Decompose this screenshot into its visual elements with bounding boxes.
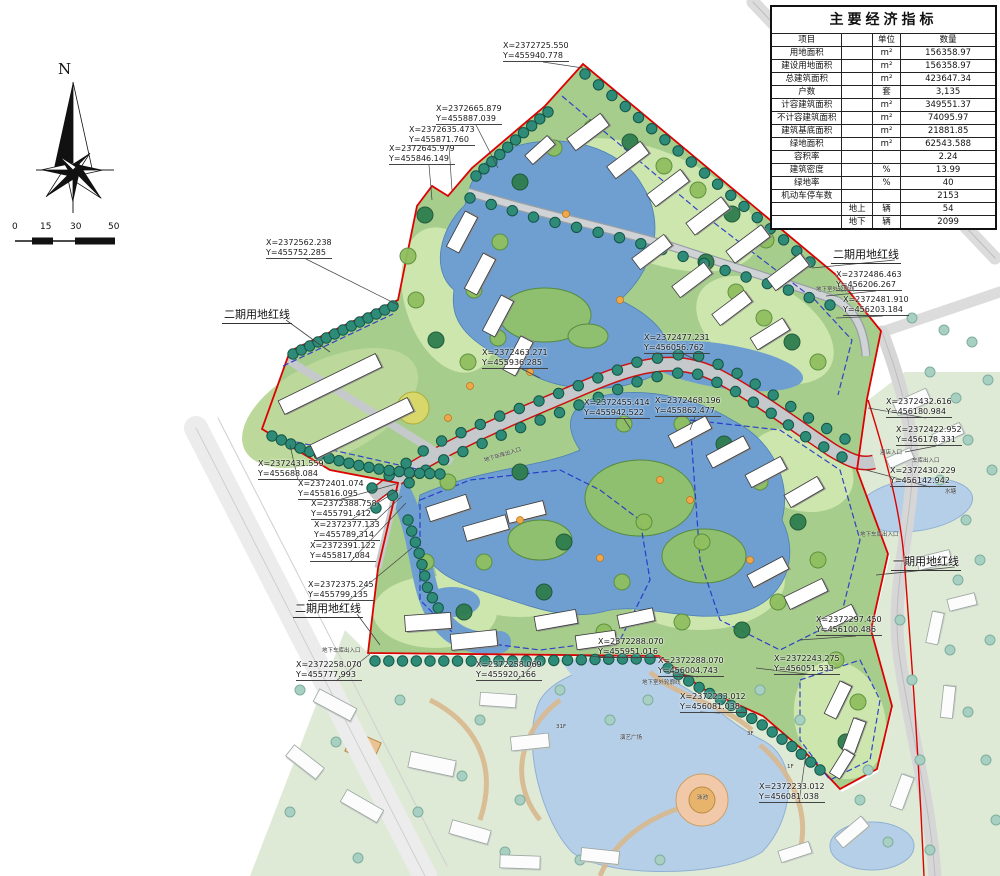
- table-cell-qty: 40: [901, 177, 996, 190]
- table-cell-sub: [842, 151, 872, 164]
- table-row: 建设用地面积m²156358.97: [771, 60, 996, 73]
- table-cell-item: [771, 203, 842, 216]
- table-cell-unit: 辆: [872, 203, 900, 216]
- table-cell-unit: [872, 151, 900, 164]
- table-cell-sub: [842, 86, 872, 99]
- table-cell-qty: 2.24: [901, 151, 996, 164]
- table-row: 建筑密度%13.99: [771, 164, 996, 177]
- table-cell-item: 用地面积: [771, 47, 842, 60]
- table-cell-qty: 423647.34: [901, 73, 996, 86]
- table-cell-unit: m²: [872, 125, 900, 138]
- table-cell-sub: 地上: [842, 203, 872, 216]
- table-cell-sub: [842, 177, 872, 190]
- table-cell-unit: m²: [872, 47, 900, 60]
- table-cell-item: 总建筑面积: [771, 73, 842, 86]
- table-row: 计容建筑面积m²349551.37: [771, 99, 996, 112]
- col-header-qty: 数量: [901, 34, 996, 47]
- table-cell-sub: [842, 190, 872, 203]
- table-row: 地上辆54: [771, 203, 996, 216]
- scale-tick-15: 15: [40, 222, 51, 232]
- table-cell-unit: 辆: [872, 216, 900, 230]
- col-header-item: 项目: [771, 34, 842, 47]
- table-row: 户数套3,135: [771, 86, 996, 99]
- table-cell-unit: %: [872, 164, 900, 177]
- table-cell-item: 计容建筑面积: [771, 99, 842, 112]
- scale-bar: 0 15 30 50: [12, 222, 122, 246]
- table-header-row: 项目 单位 数量: [771, 34, 996, 47]
- table-row: 绿地面积m²62543.588: [771, 138, 996, 151]
- table-cell-item: 机动车停车数: [771, 190, 842, 203]
- north-label: N: [58, 60, 71, 78]
- table-cell-item: 建筑基底面积: [771, 125, 842, 138]
- scale-tick-0: 0: [12, 222, 18, 232]
- table-cell-sub: [842, 125, 872, 138]
- table-cell-unit: m²: [872, 112, 900, 125]
- table-row: 地下辆2099: [771, 216, 996, 230]
- table-cell-sub: [842, 138, 872, 151]
- scale-tick-50: 50: [108, 222, 119, 232]
- table-row: 不计容建筑面积m²74095.97: [771, 112, 996, 125]
- table-cell-unit: %: [872, 177, 900, 190]
- table-cell-unit: m²: [872, 138, 900, 151]
- table-cell-sub: [842, 60, 872, 73]
- table-cell-unit: [872, 190, 900, 203]
- table-row: 用地面积m²156358.97: [771, 47, 996, 60]
- compass-rose: [18, 78, 128, 218]
- table-cell-qty: 156358.97: [901, 60, 996, 73]
- table-row: 绿地率%40: [771, 177, 996, 190]
- table-cell-qty: 156358.97: [901, 47, 996, 60]
- table-cell-unit: 套: [872, 86, 900, 99]
- table-row: 容积率2.24: [771, 151, 996, 164]
- table-row: 总建筑面积m²423647.34: [771, 73, 996, 86]
- table-cell-unit: m²: [872, 99, 900, 112]
- table-cell-qty: 74095.97: [901, 112, 996, 125]
- table-cell-sub: [842, 164, 872, 177]
- table-cell-qty: 2099: [901, 216, 996, 230]
- table-cell-sub: [842, 99, 872, 112]
- economic-indicators-table: 主要经济指标 项目 单位 数量 用地面积m²156358.97建设用地面积m²1…: [770, 5, 997, 230]
- table-cell-qty: 13.99: [901, 164, 996, 177]
- table-cell-item: 建设用地面积: [771, 60, 842, 73]
- table-cell-qty: 349551.37: [901, 99, 996, 112]
- table-cell-unit: m²: [872, 60, 900, 73]
- table-cell-sub: [842, 47, 872, 60]
- table-cell-qty: 62543.588: [901, 138, 996, 151]
- table-cell-qty: 21881.85: [901, 125, 996, 138]
- table-cell-item: 绿地面积: [771, 138, 842, 151]
- table-cell-sub: [842, 73, 872, 86]
- table-cell-item: 建筑密度: [771, 164, 842, 177]
- table-row: 建筑基底面积m²21881.85: [771, 125, 996, 138]
- col-header-unit: 单位: [872, 34, 900, 47]
- table-title: 主要经济指标: [771, 6, 996, 34]
- table-cell-qty: 3,135: [901, 86, 996, 99]
- north-compass: N: [18, 60, 128, 220]
- table-cell-item: 不计容建筑面积: [771, 112, 842, 125]
- table-cell-item: 容积率: [771, 151, 842, 164]
- table-cell-sub: [842, 112, 872, 125]
- table-cell-item: 绿地率: [771, 177, 842, 190]
- scale-tick-30: 30: [70, 222, 81, 232]
- table-cell-qty: 2153: [901, 190, 996, 203]
- col-header-sub: [842, 34, 872, 47]
- table-cell-sub: 地下: [842, 216, 872, 230]
- table-cell-qty: 54: [901, 203, 996, 216]
- table-cell-unit: m²: [872, 73, 900, 86]
- site-plan-sheet: N 0 15 30 50 主要经济指标 项目 单位 数量 用地面积m²: [0, 0, 1000, 876]
- table-row: 机动车停车数2153: [771, 190, 996, 203]
- table-cell-item: 户数: [771, 86, 842, 99]
- table-cell-item: [771, 216, 842, 230]
